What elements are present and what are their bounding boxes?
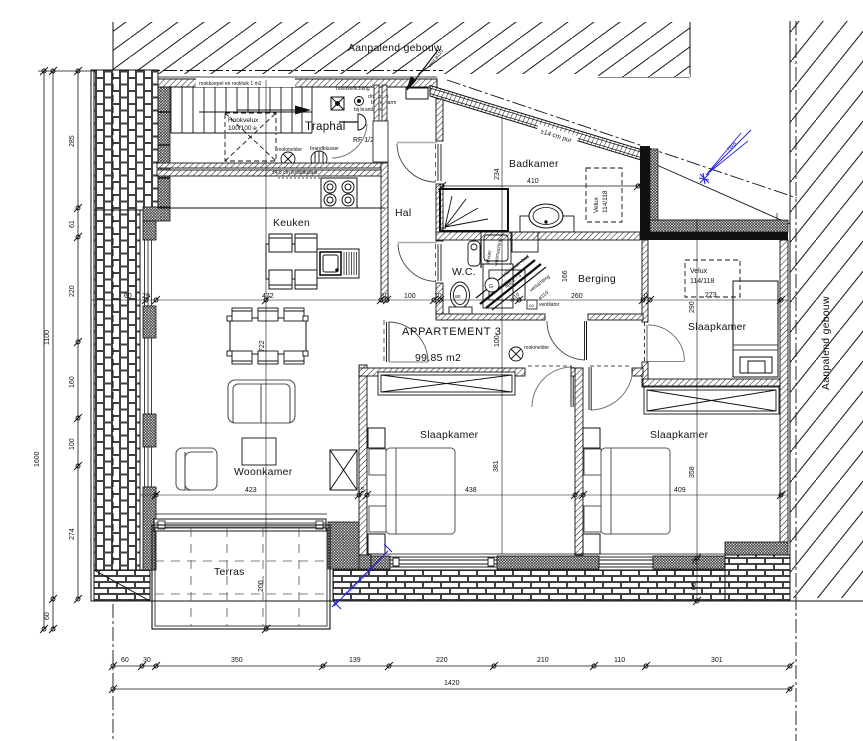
svg-text:220: 220 <box>69 285 76 297</box>
svg-text:60: 60 <box>121 657 129 664</box>
svg-text:Traphal: Traphal <box>305 121 346 133</box>
svg-text:Keuken: Keuken <box>273 218 310 229</box>
svg-text:60: 60 <box>44 612 51 620</box>
svg-text:Berging: Berging <box>578 274 616 285</box>
svg-text:1600: 1600 <box>34 451 41 467</box>
svg-text:290: 290 <box>689 301 696 313</box>
svg-text:noodverlichting: noodverlichting <box>336 86 370 92</box>
svg-text:Terras: Terras <box>214 567 245 578</box>
svg-text:G: G <box>489 284 493 290</box>
svg-text:Aanpalend gebouw: Aanpalend gebouw <box>821 296 832 390</box>
svg-text:409: 409 <box>674 487 686 494</box>
svg-text:210: 210 <box>537 657 549 664</box>
svg-text:274: 274 <box>69 528 76 540</box>
svg-text:Woonkamer: Woonkamer <box>234 467 293 478</box>
svg-text:APPARTEMENT 3: APPARTEMENT 3 <box>402 326 502 338</box>
svg-text:114/118: 114/118 <box>690 278 714 285</box>
svg-text:ventilator: ventilator <box>539 302 560 308</box>
svg-text:100: 100 <box>69 438 76 450</box>
svg-text:100: 100 <box>404 293 416 300</box>
svg-text:Aanpalend gebouw: Aanpalend gebouw <box>348 43 442 54</box>
svg-text:1100: 1100 <box>44 330 51 345</box>
svg-text:Slaapkamer: Slaapkamer <box>420 430 479 441</box>
svg-text:rookmelder: rookmelder <box>277 147 302 153</box>
svg-text:114/118: 114/118 <box>602 190 609 213</box>
svg-text:423: 423 <box>245 487 257 494</box>
svg-text:358: 358 <box>689 466 696 478</box>
svg-text:Velux: Velux <box>593 196 600 213</box>
svg-text:285: 285 <box>69 135 76 147</box>
svg-text:ao: ao <box>455 294 461 300</box>
svg-text:1420: 1420 <box>444 680 460 687</box>
svg-text:30: 30 <box>143 657 151 664</box>
svg-text:200: 200 <box>258 580 265 592</box>
svg-text:±4,5 cm isolatieplaat: ±4,5 cm isolatieplaat <box>272 170 318 176</box>
svg-text:220: 220 <box>436 657 448 664</box>
svg-text:Rookvelux: Rookvelux <box>228 117 259 124</box>
svg-text:Badkamer: Badkamer <box>509 159 559 170</box>
svg-text:Slaapkamer: Slaapkamer <box>650 430 709 441</box>
svg-text:W.C.: W.C. <box>452 266 476 278</box>
svg-text:260: 260 <box>571 293 583 300</box>
svg-text:160: 160 <box>69 376 76 388</box>
svg-text:Velux: Velux <box>690 268 708 275</box>
svg-text:139: 139 <box>349 657 361 664</box>
svg-text:110: 110 <box>614 657 625 664</box>
svg-text:bij brandalarm: bij brandalarm <box>354 107 386 113</box>
svg-text:rookkoepel en rookluik 1 m2: rookkoepel en rookluik 1 m2 <box>199 81 262 87</box>
svg-text:Hal: Hal <box>395 208 412 219</box>
svg-text:29: 29 <box>142 293 150 300</box>
svg-text:co: co <box>529 303 534 308</box>
svg-text:301: 301 <box>711 657 723 664</box>
svg-text:350: 350 <box>231 657 243 664</box>
svg-text:273: 273 <box>705 292 717 299</box>
svg-text:438: 438 <box>465 487 477 494</box>
svg-text:rookmelder: rookmelder <box>524 345 549 351</box>
svg-text:brandblusser: brandblusser <box>310 146 339 152</box>
svg-text:234: 234 <box>494 168 501 180</box>
svg-text:722: 722 <box>259 340 266 352</box>
svg-text:60: 60 <box>124 293 132 300</box>
svg-text:60: 60 <box>691 582 698 590</box>
svg-text:99.85 m2: 99.85 m2 <box>415 352 461 364</box>
svg-text:410: 410 <box>527 178 539 185</box>
svg-text:381: 381 <box>493 460 500 472</box>
svg-text:100/100 e: 100/100 e <box>228 125 257 132</box>
svg-text:166: 166 <box>562 270 569 282</box>
svg-text:61: 61 <box>69 220 76 228</box>
